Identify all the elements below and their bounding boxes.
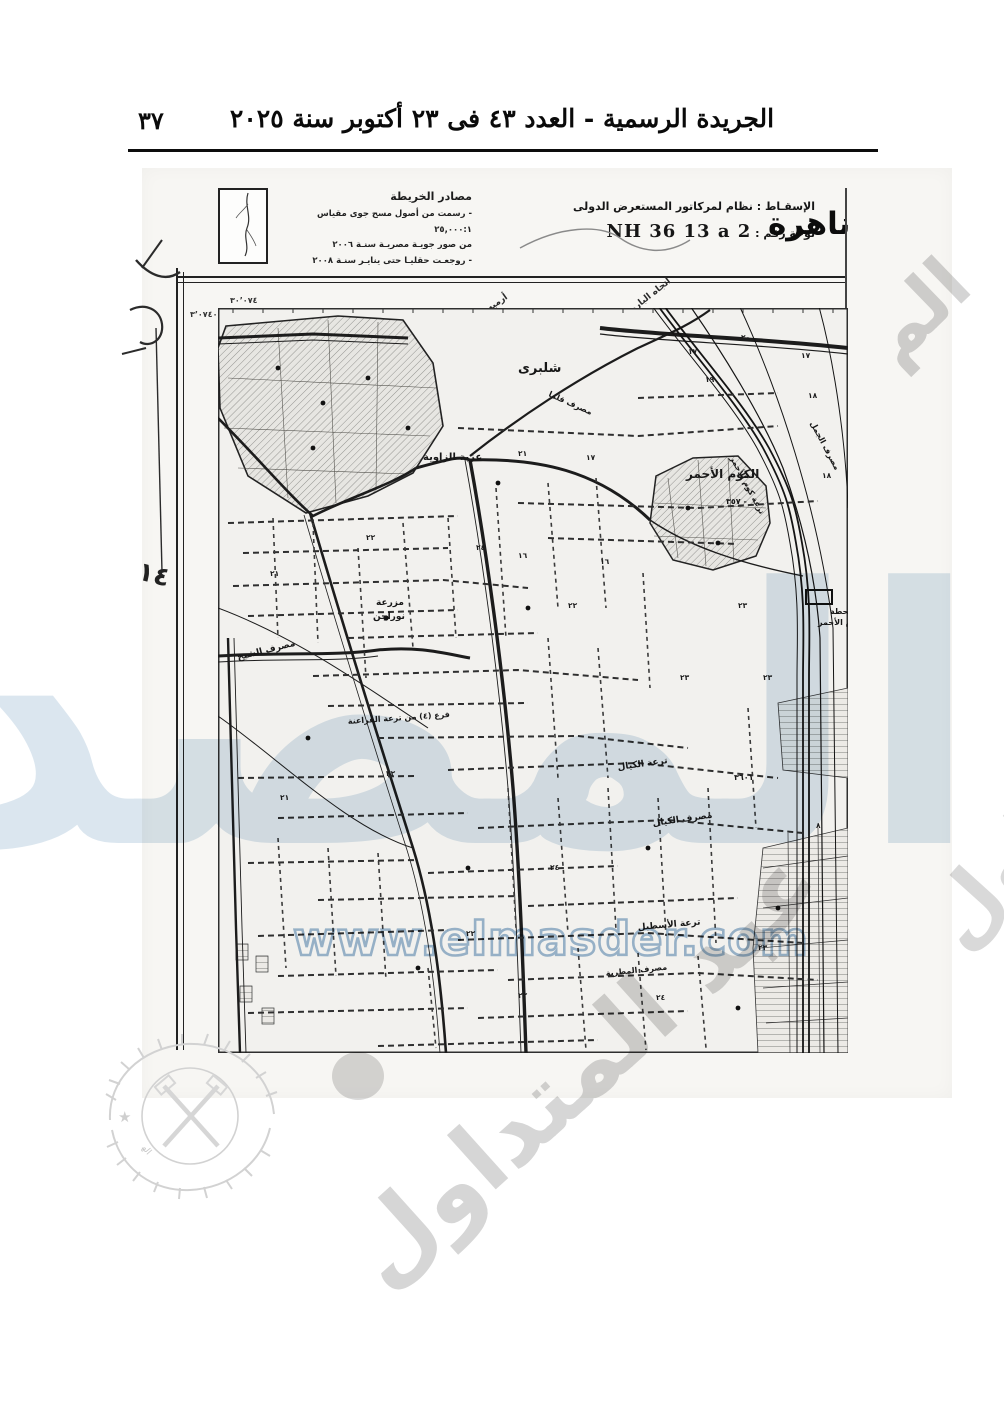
map-label: محطة (830, 607, 848, 616)
map-number: ١٨ (808, 391, 818, 400)
map-number: ١٦ (600, 557, 610, 566)
map-number: ١٧ (801, 351, 811, 360)
map-number: ٢٣ (738, 601, 748, 610)
pen-scribble (500, 218, 700, 268)
frame-ticks (233, 308, 833, 313)
map-number: ٢٣ (758, 943, 768, 952)
map-number: ٢١ (270, 569, 279, 578)
map-label: مزرعة (376, 598, 404, 608)
map-number: ١٧ (688, 347, 698, 356)
map-number: ٢٤ (550, 863, 559, 872)
map-number: ٢٢ (466, 929, 476, 938)
map-label: شلبرى (518, 361, 561, 376)
header-title: الجريدة الرسمية - العدد ٤٣ فى ٢٣ أكتوبر … (0, 104, 1004, 133)
stamp-crossed-tools (155, 1075, 227, 1146)
legend-source-line: - روجعـت حقليـا حتى ينايـر سنـة ٢٠٠٨ (282, 254, 472, 270)
map-number: ١٦ (518, 551, 528, 560)
map-number: ٨ (816, 821, 821, 830)
gazette-page: ٣٧ الجريدة الرسمية - العدد ٤٣ فى ٢٣ أكتو… (0, 0, 1004, 1418)
map-number: ٢٤ (476, 543, 485, 552)
map-number: ١٨ (822, 471, 832, 480)
scanned-map: شلبرىعزبة الزاويةالكوم الأحمرمحطةالكوم ا… (218, 308, 848, 1053)
frame-top-inner (178, 282, 846, 283)
city-title-partial: ناهرة (768, 206, 850, 242)
map-number: ٢٤ (656, 993, 665, 1002)
legend-lines: - رسمت من أصول مسح جوى مقياس ٢٥,٠٠٠:١من … (282, 207, 472, 270)
map-number: ٢٢ (518, 991, 528, 1000)
legend-source-line: - رسمت من أصول مسح جوى مقياس ٢٥,٠٠٠:١ (282, 207, 472, 238)
map-number: ٢٣ (763, 673, 773, 682)
map-sources-legend: مصادر الخريطة - رسمت من أصول مسح جوى مقي… (282, 190, 472, 270)
map-number: ٢٢ (568, 601, 578, 610)
map-label: نوراجن (373, 612, 405, 622)
svg-text:الهيئة العامة لشئون المطابع ال: الهيئة العامة لشئون المطابع الأميرية (80, 1030, 153, 1157)
map-label: ٣٦٠١ (734, 773, 754, 782)
map-number: ٢١ (280, 793, 289, 802)
map-label: ٣٥٧ - (726, 497, 747, 506)
stamp-star: ★ (118, 1108, 131, 1126)
header-rule (128, 149, 878, 152)
stamp-text: الهيئة العامة لشئون المطابع الأميرية (80, 1030, 153, 1157)
legend-title: مصادر الخريطة (282, 190, 472, 203)
official-stamp-emblem: ★ الهيئة العامة لشئون المطابع الأميرية (80, 1030, 300, 1200)
frame-top-outer (178, 276, 846, 278)
map-label: الكوم الأحمر (817, 617, 848, 627)
map-number: ٢١ (518, 449, 527, 458)
watermark-dot (332, 1052, 384, 1100)
map-number: ٢٢ (366, 533, 376, 542)
map-number: ٢٢ (386, 769, 396, 778)
map-number: ١٧ (586, 453, 596, 462)
map-number: ١٩ (705, 375, 715, 384)
legend-source-line: من صور جويـة مصريـة سنـة ٢٠٠٦ (282, 238, 472, 254)
map-label: عزبة الزاوية (423, 452, 482, 463)
projection-line: الإسقـاط : نظام لمركاتور المستعرض الدولى (455, 200, 815, 213)
map-number: ٢٠ (741, 333, 750, 342)
map-number: ٢٣ (680, 673, 690, 682)
